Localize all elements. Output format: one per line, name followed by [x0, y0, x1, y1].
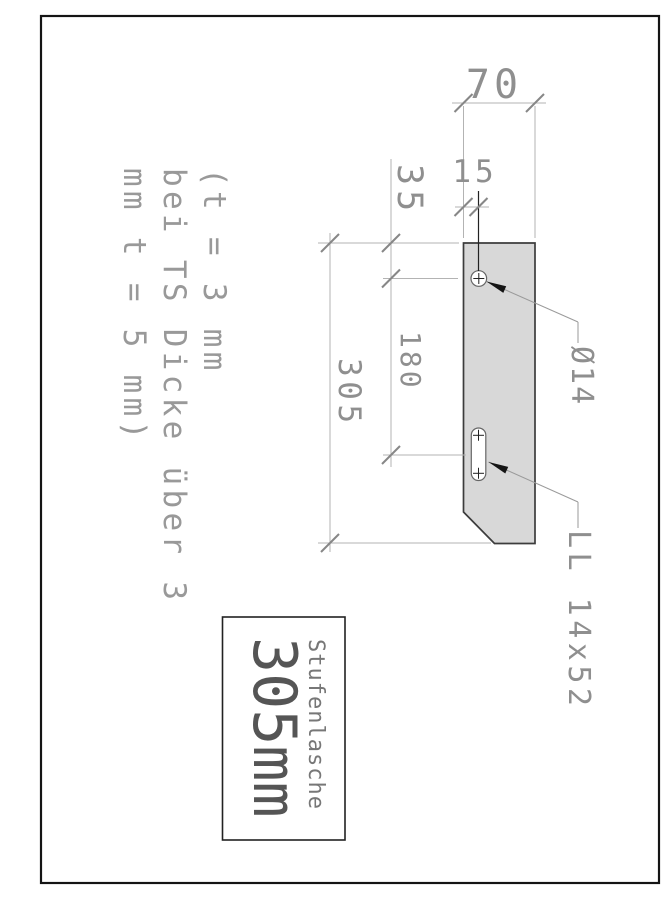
dim-edge-to-hole: 15 — [449, 155, 501, 189]
note-line-2: bei TS Dicke über 3 — [154, 168, 194, 604]
hole-diameter-label: Ø14 — [566, 346, 596, 406]
dim-plate-width: 70 — [462, 65, 526, 105]
dim-hole-to-slot: 180 — [395, 331, 425, 391]
drawing-linework — [0, 0, 669, 906]
slot-hole — [471, 428, 486, 481]
note-line-1: (t = 3 mm — [194, 168, 234, 604]
drawing-sheet: 70 15 35 180 305 Ø14 LL 14x52 (t = 3 mm … — [0, 0, 669, 906]
dim-top-to-hole: 35 — [392, 164, 425, 216]
round-hole — [471, 271, 487, 287]
title-part-size: 305mm — [248, 637, 300, 818]
slot-size-label: LL 14x52 — [563, 530, 593, 711]
thickness-note: (t = 3 mm bei TS Dicke über 3 mm t = 5 m… — [114, 168, 234, 604]
dim-total-length: 305 — [333, 358, 364, 428]
note-line-3: mm t = 5 mm) — [114, 168, 154, 604]
